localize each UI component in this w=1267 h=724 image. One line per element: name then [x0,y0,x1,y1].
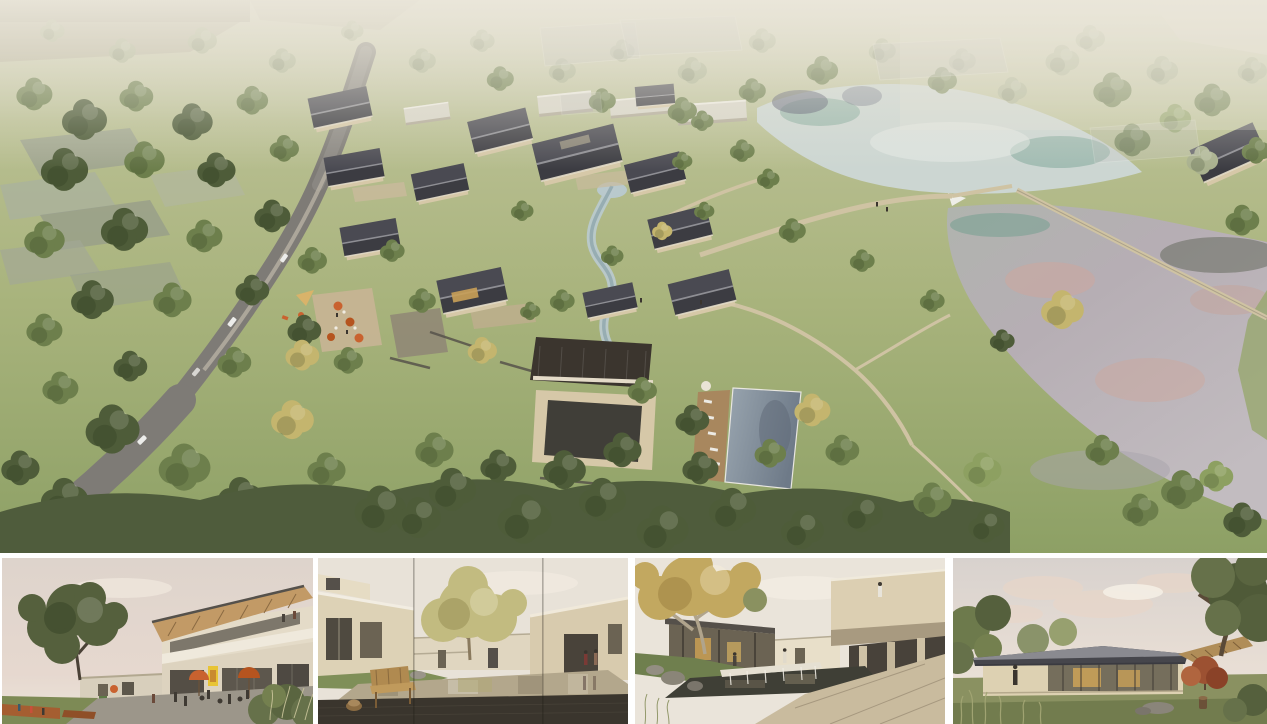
courtyard-pond-illustration [318,558,628,724]
center-buildings [414,634,530,670]
waterfall-court-illustration [635,558,945,724]
person-figure [1013,665,1018,685]
street-plaza-panel [2,558,313,724]
street-plaza-illustration [2,558,313,724]
aerial-masterplan-illustration [0,0,1267,553]
pavilion-illustration [953,558,1267,724]
aerial-masterplan-panel [0,0,1267,553]
waterfall-court-panel [635,558,945,724]
courtyard-pond-panel [318,558,628,724]
rendering-board [0,0,1267,724]
pavilion-panel [953,558,1267,724]
